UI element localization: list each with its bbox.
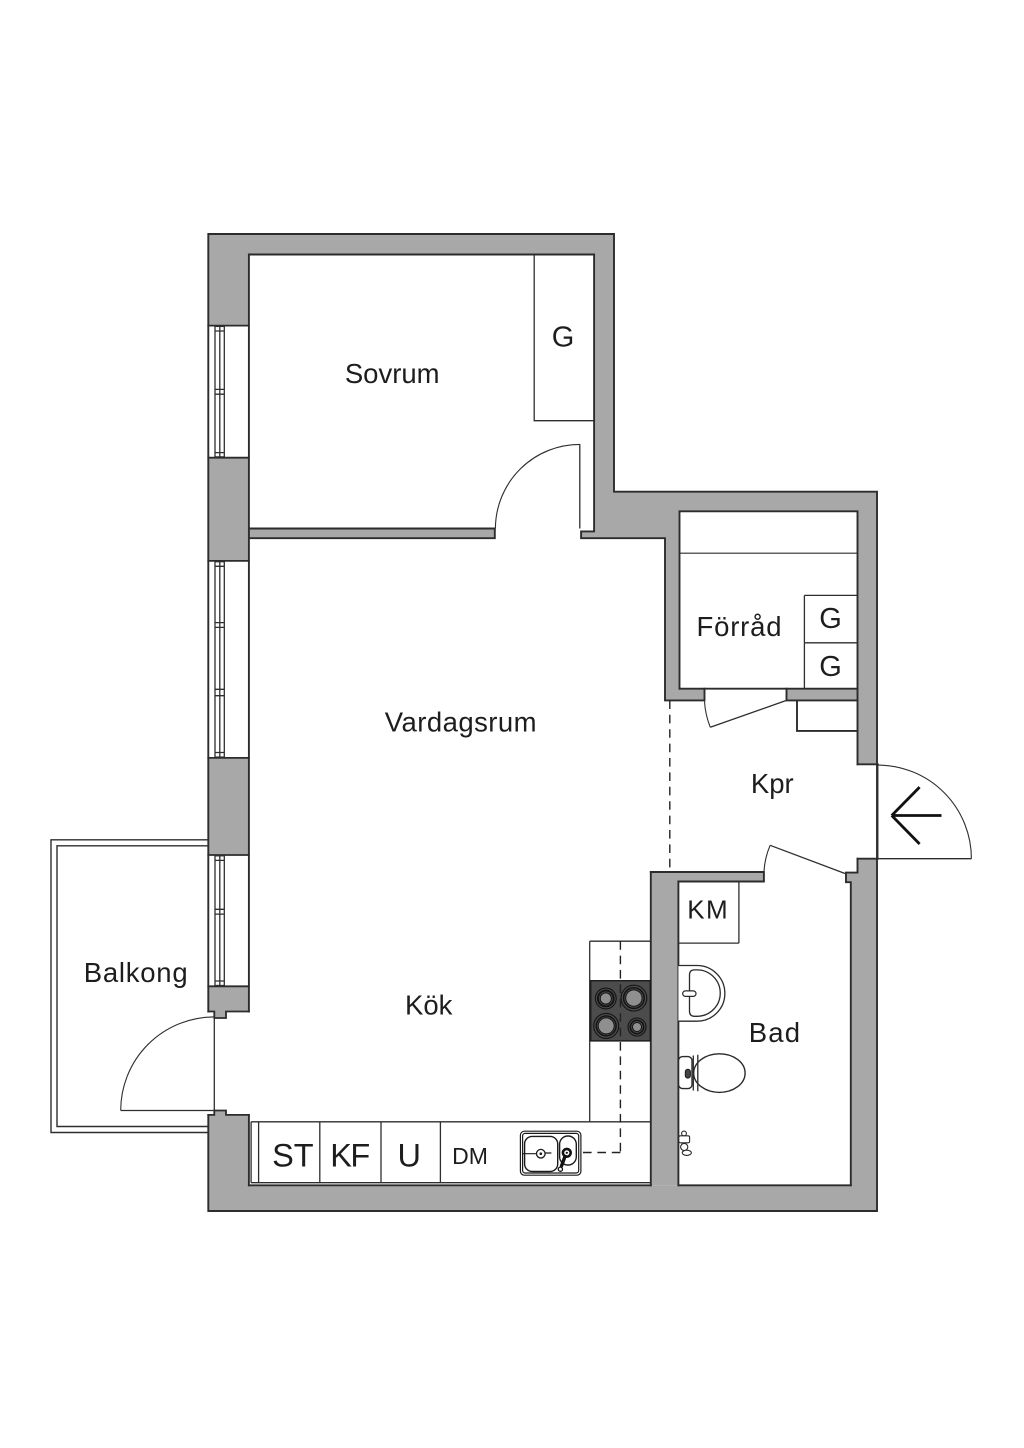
svg-text:Vardagsrum: Vardagsrum bbox=[385, 706, 537, 737]
svg-text:Bad: Bad bbox=[749, 1017, 802, 1048]
svg-text:Kök: Kök bbox=[405, 990, 453, 1021]
svg-text:Balkong: Balkong bbox=[84, 957, 189, 988]
svg-text:ST: ST bbox=[272, 1137, 314, 1173]
svg-text:Kpr: Kpr bbox=[751, 768, 794, 799]
svg-text:Sovrum: Sovrum bbox=[345, 358, 440, 389]
svg-text:G: G bbox=[552, 322, 575, 354]
svg-text:G: G bbox=[819, 603, 842, 635]
svg-text:KF: KF bbox=[330, 1137, 369, 1173]
svg-text:U: U bbox=[398, 1137, 421, 1173]
svg-text:KM: KM bbox=[687, 894, 729, 924]
svg-text:DM: DM bbox=[452, 1143, 488, 1169]
svg-text:G: G bbox=[819, 651, 842, 683]
svg-text:Förråd: Förråd bbox=[697, 611, 783, 642]
